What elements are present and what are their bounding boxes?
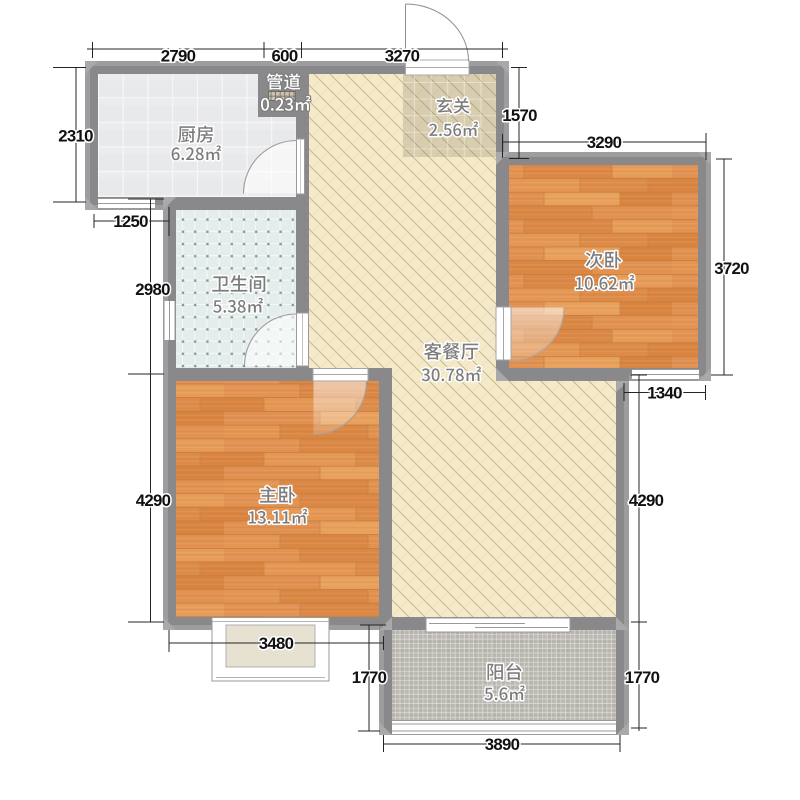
svg-text:1250: 1250 (113, 212, 148, 231)
svg-text:1570: 1570 (502, 106, 537, 125)
svg-text:1340: 1340 (647, 384, 682, 403)
svg-text:600: 600 (272, 47, 298, 66)
svg-text:2790: 2790 (161, 47, 196, 66)
svg-text:3890: 3890 (485, 735, 520, 754)
svg-text:3290: 3290 (587, 133, 622, 152)
svg-text:2310: 2310 (58, 127, 93, 146)
svg-text:1770: 1770 (625, 668, 660, 687)
svg-text:1770: 1770 (352, 668, 387, 687)
svg-text:4290: 4290 (136, 491, 171, 510)
svg-text:3720: 3720 (714, 259, 749, 278)
svg-text:2980: 2980 (135, 280, 170, 299)
svg-text:3480: 3480 (259, 634, 294, 653)
svg-text:4290: 4290 (629, 491, 664, 510)
svg-text:3270: 3270 (385, 47, 420, 66)
